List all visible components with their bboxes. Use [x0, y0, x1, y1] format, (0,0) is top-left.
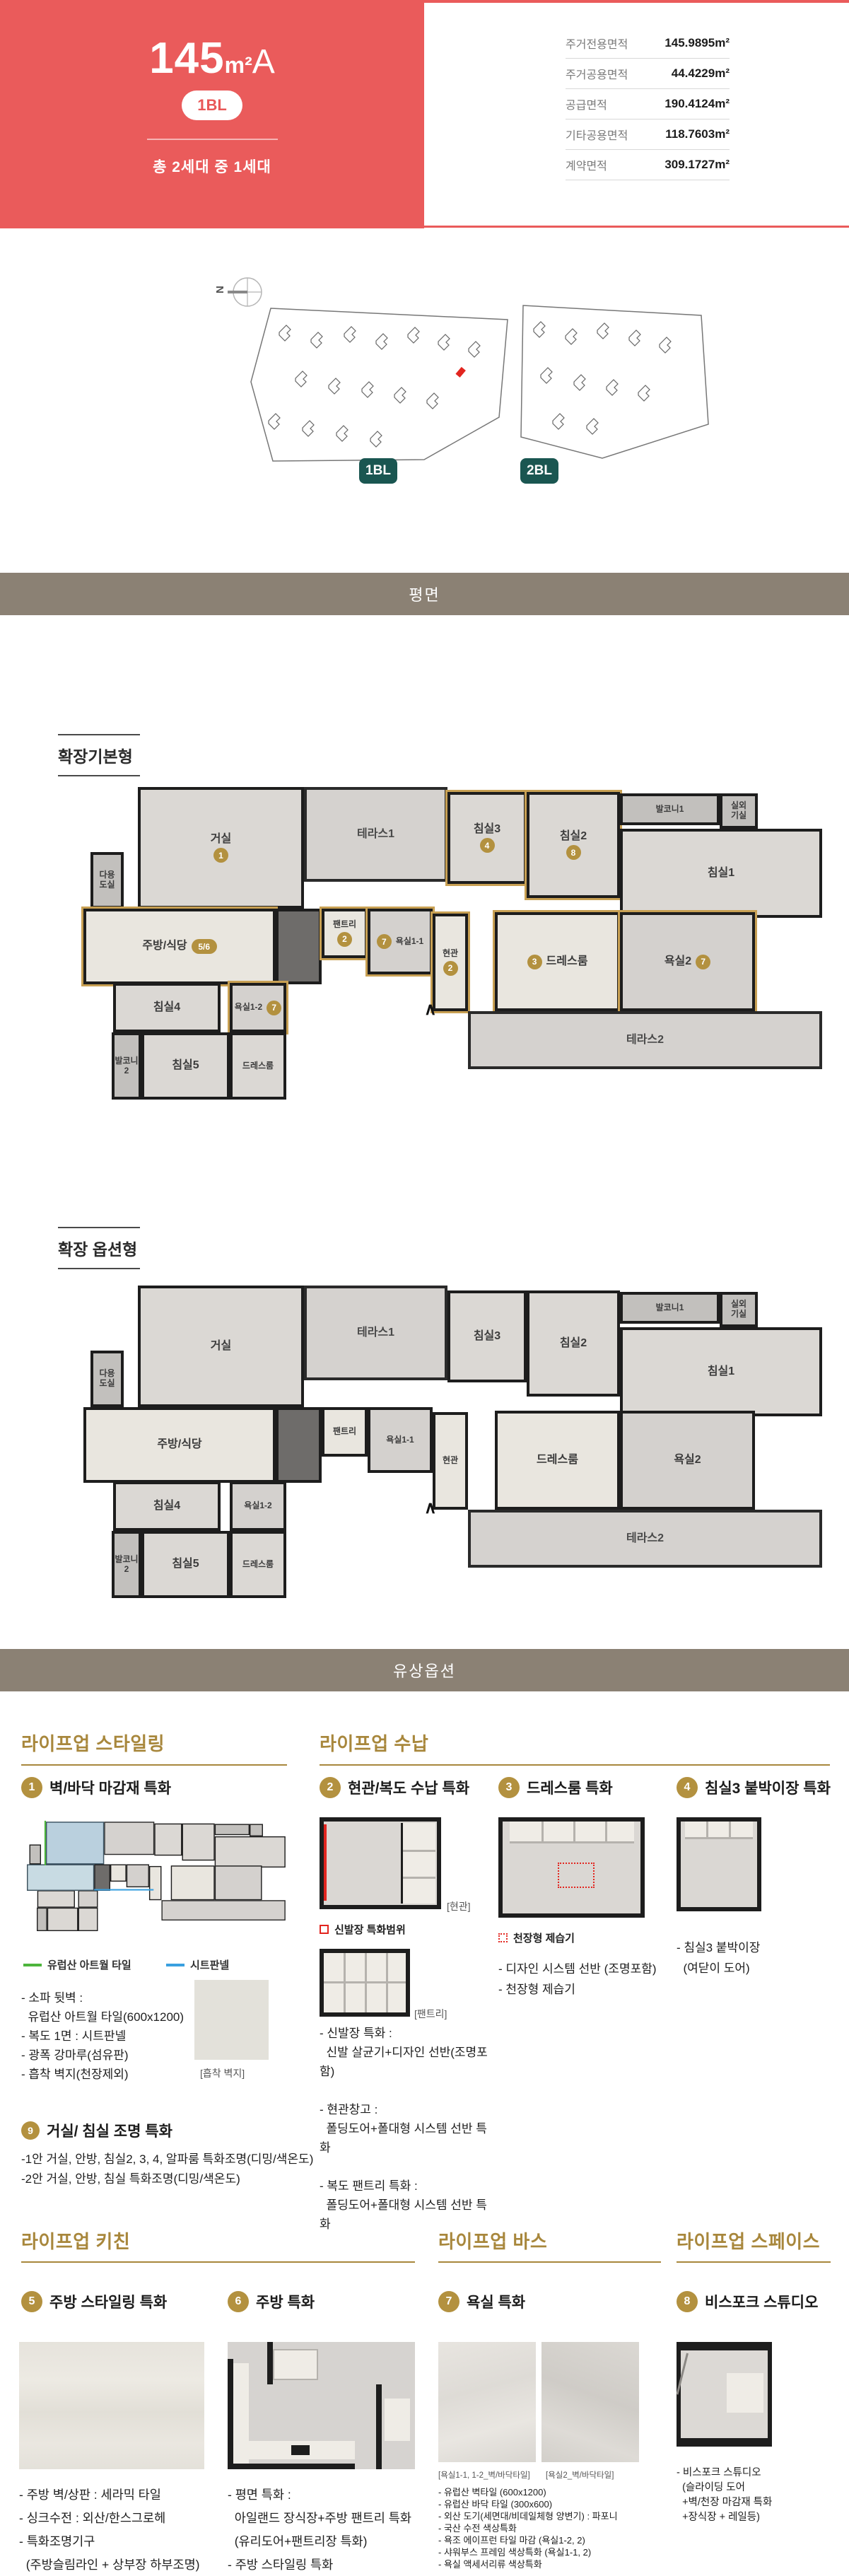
room-label: 팬트리 [333, 1427, 356, 1437]
brochure-page: 145m²A 1BL 총 2세대 중 1세대 주거전용면적145.9895m² … [0, 0, 849, 2576]
room-number-badge: 7 [267, 1001, 281, 1015]
rule [677, 2261, 831, 2263]
room-label: 발코니2 [115, 1056, 139, 1076]
room-label: 발코니2 [115, 1555, 139, 1575]
option-item-7: 7 욕실 특화 [438, 2291, 525, 2312]
table-row: 기타공용면적118.7603m² [566, 120, 730, 150]
rule [320, 1764, 830, 1766]
ceramic-tile-swatch [19, 2342, 204, 2469]
room-label: 드레스룸 [242, 1560, 274, 1570]
room-bed3: 침실34 [447, 792, 527, 884]
room-bath1-1 [127, 1865, 149, 1888]
accent-sky-fill [27, 1865, 94, 1891]
legend-artwall: 유럽산 아트월 타일 [23, 1957, 131, 1972]
room-kitchen: 주방/식당5/6 [83, 909, 276, 984]
section-title-storage: 라이프업 수납 [320, 1730, 428, 1756]
room-bed4: 침실4 [113, 983, 221, 1032]
room-dressroom [171, 1865, 215, 1900]
room-label: 침실4 [153, 1500, 180, 1513]
room-dressroom: 드레스룸 [495, 1411, 620, 1510]
room-bed2: 침실28 [527, 792, 620, 898]
site-badge-1bl: 1BL [359, 458, 397, 484]
bath-tile-caption-1: [욕실1-1, 1-2_벽/바닥타일] [438, 2469, 530, 2481]
item9-bullets: -1안 거실, 안방, 침실2, 3, 4, 알파룸 특화조명(디밍/색온도) … [21, 2150, 318, 2189]
room-label: 침실5 [172, 1558, 199, 1570]
rule [21, 1764, 287, 1766]
room-number-badge: 8 [566, 845, 581, 860]
room-label: 발코니1 [656, 805, 684, 815]
plan2-label: 확장 옵션형 [58, 1227, 140, 1269]
red-dotted-square-icon [498, 1933, 508, 1942]
option-item-9: 9 거실/ 침실 조명 특화 [21, 2120, 172, 2141]
block-badge: 1BL [182, 91, 242, 120]
item-number-badge: 3 [498, 1777, 520, 1798]
bath-tile-swatch-2 [541, 2342, 639, 2462]
header-bottom-line [424, 226, 849, 228]
legend-dehumidifier: 천장형 제습기 [498, 1930, 575, 1945]
thumb-dressroom-plan [498, 1817, 645, 1918]
item-number-badge: 9 [21, 2121, 40, 2140]
wallpaper-swatch [194, 1980, 269, 2060]
section-title-space: 라이프업 스페이스 [677, 2227, 820, 2254]
room-terrace1: 테라스1 [304, 1286, 447, 1380]
room-bath1-2: 욕실1-27 [230, 983, 286, 1032]
item3-bullets: - 디자인 시스템 선반 (조명포함) - 천장형 제습기 [498, 1959, 696, 2000]
room-label: 욕실1-1 [396, 937, 423, 947]
item2-bullets: - 신발장 특화 : 신발 살균기+디자인 선반(조명포함) - 현관창고 : … [320, 2024, 489, 2234]
room-terrace2: 테라스2 [468, 1011, 822, 1069]
room-label: 주방/식당 [157, 1438, 201, 1451]
room-number-badge: 2 [443, 961, 458, 976]
room-label: 침실1 [708, 867, 734, 880]
room-entry: 현관 [433, 1412, 468, 1510]
room-bed4 [37, 1890, 75, 1908]
room-label: 거실 [211, 1340, 231, 1353]
room-utility [30, 1845, 41, 1865]
room-kitchen: 주방/식당 [83, 1407, 276, 1483]
section-title-bath: 라이프업 바스 [438, 2227, 547, 2254]
option-item-8: 8 비스포크 스튜디오 [677, 2291, 818, 2312]
room-bed2: 침실2 [527, 1290, 620, 1397]
room-ac-room: 실외 기실 [720, 1292, 758, 1327]
room-bed3: 침실3 [447, 1290, 527, 1382]
room-label: 침실3 [474, 823, 500, 836]
room-entry: 현관2 [433, 914, 468, 1011]
room-balcony1 [215, 1824, 250, 1835]
room-label: 욕실2 [674, 1454, 701, 1467]
room-bed1: 침실1 [620, 1327, 822, 1416]
room-label: 발코니1 [656, 1303, 684, 1313]
green-line-icon [23, 1964, 42, 1966]
room-label: 욕실1-2 [235, 1003, 262, 1013]
room-number-badge: 7 [377, 934, 392, 949]
header-divider [147, 139, 278, 140]
bath-tile-caption-2: [욕실2_벽/바닥타일] [546, 2469, 614, 2481]
item8-bullets: - 비스포크 스튜디오 (슬라이딩 도어 +벽/천장 마감재 특화 +장식장 +… [677, 2466, 839, 2525]
table-row: 주거공용면적44.4229m² [566, 59, 730, 89]
site-badge-2bl: 2BL [520, 458, 558, 484]
room-corridor [94, 1865, 110, 1891]
room-ac-room [250, 1824, 263, 1836]
room-label: 테라스2 [626, 1532, 664, 1545]
room-bed1: 침실1 [620, 829, 822, 918]
section-bar-plan: 평면 [0, 573, 849, 615]
thumb-styling-plan [21, 1817, 290, 1935]
room-dressroom: 3드레스룸 [495, 912, 620, 1011]
room-label: 팬트리 [333, 920, 356, 930]
pantry-caption: [팬트리] [414, 2007, 447, 2021]
room-label: 테라스1 [357, 1327, 394, 1339]
room-bed5: 침실5 [141, 1032, 230, 1100]
type-title: 145m²A [149, 37, 275, 81]
entry-arrow-icon: ∧ [424, 1498, 437, 1518]
option-item-5: 5 주방 스타일링 특화 [21, 2291, 167, 2312]
room-bed1 [215, 1836, 286, 1867]
room-number-badge: 1 [213, 848, 228, 863]
room-balcony2: 발코니2 [112, 1531, 141, 1598]
bath-tile-swatch-1 [438, 2342, 536, 2462]
room-dressroom2: 드레스룸 [230, 1032, 286, 1100]
room-terrace2: 테라스2 [468, 1510, 822, 1568]
room-ac-room: 실외 기실 [720, 793, 758, 829]
room-terrace1 [104, 1822, 154, 1855]
room-corridor [276, 909, 322, 984]
type-header: 145m²A 1BL 총 2세대 중 1세대 [0, 0, 424, 228]
item7-bullets: - 유럽산 벽타일 (600x1200) - 유럽산 바닥 타일 (300x60… [438, 2486, 672, 2570]
room-label: 침실5 [172, 1059, 199, 1072]
room-label: 침실4 [153, 1001, 180, 1014]
area-table: 주거전용면적145.9895m² 주거공용면적44.4229m² 공급면적190… [566, 28, 730, 180]
entry-arrow-icon: ∧ [424, 999, 437, 1020]
accent-blue-line [94, 1889, 153, 1891]
rule [438, 2261, 661, 2263]
item-number-badge: 4 [677, 1777, 698, 1798]
room-pantry: 팬트리 [322, 1407, 368, 1457]
room-living: 거실 [138, 1286, 304, 1407]
room-dressroom2: 드레스룸 [230, 1531, 286, 1598]
table-row: 주거전용면적145.9895m² [566, 28, 730, 59]
room-label: 현관 [443, 949, 458, 959]
item5-bullets: - 주방 벽/상판 : 세라믹 타일 - 싱크수전 : 외산/한스그로헤 - 특… [19, 2483, 224, 2576]
room-label: 침실1 [708, 1365, 734, 1378]
room-balcony1: 발코니1 [620, 1292, 720, 1324]
room-bath2 [215, 1865, 262, 1900]
room-label: 욕실1-2 [244, 1501, 271, 1511]
room-bed5: 침실5 [141, 1531, 230, 1598]
thumb-entry-plan [320, 1817, 441, 1909]
red-square-icon [320, 1925, 329, 1934]
item-number-badge: 1 [21, 1777, 42, 1798]
room-corridor [276, 1407, 322, 1483]
item6-bullets: - 평면 특화 : 아일랜드 장식장+주방 팬트리 특화 (유리도어+팬트리장 … [228, 2483, 440, 2576]
room-label: 드레스룸 [546, 955, 588, 968]
room-bed5 [47, 1908, 78, 1931]
room-living: 거실1 [138, 787, 304, 909]
room-label: 침실2 [560, 1337, 587, 1350]
room-balcony2 [37, 1908, 47, 1931]
option-item-1: 1 벽/바닥 마감재 특화 [21, 1777, 171, 1798]
room-number-badge: 3 [527, 955, 542, 969]
room-bath1-1: 7욕실1-1 [368, 909, 433, 974]
entry-caption: [현관] [447, 1899, 471, 1913]
room-label: 욕실1-1 [386, 1435, 414, 1445]
item4-bullets: - 침실3 붙박이장 (여닫이 도어) [677, 1937, 832, 1978]
section-bar-paid-options: 유상옵션 [0, 1649, 849, 1691]
room-label: 거실 [211, 833, 231, 846]
room-label: 드레스룸 [537, 1454, 578, 1467]
room-label: 다용 도실 [99, 870, 115, 890]
thumb-studio-plan [677, 2342, 772, 2447]
room-pantry: 팬트리2 [322, 909, 368, 958]
option-item-3: 3 드레스룸 특화 [498, 1777, 613, 1798]
item-number-badge: 5 [21, 2291, 42, 2312]
site-plan-svg: N [212, 255, 735, 488]
room-bath1-2: 욕실1-2 [230, 1481, 286, 1531]
room-label: 침실3 [474, 1330, 500, 1343]
room-label: 다용 도실 [99, 1369, 115, 1389]
item-number-badge: 2 [320, 1777, 341, 1798]
room-label: 실외 기실 [731, 801, 746, 821]
room-label: 테라스1 [357, 828, 394, 841]
accent-sky-fill [46, 1822, 104, 1864]
room-terrace1: 테라스1 [304, 787, 447, 882]
room-balcony2: 발코니2 [112, 1032, 141, 1100]
legend-shoe-cabinet: 신발장 특화범위 [320, 1922, 406, 1937]
plan1-label: 확장기본형 [58, 734, 140, 776]
room-number-badge: 5/6 [192, 939, 217, 954]
room-bed3 [154, 1824, 182, 1856]
room-pantry [110, 1865, 127, 1882]
room-label: 침실2 [560, 830, 587, 843]
room-bath2: 욕실27 [620, 912, 755, 1011]
room-bed4: 침실4 [113, 1481, 221, 1531]
item-number-badge: 7 [438, 2291, 459, 2312]
room-bath1-2 [78, 1890, 98, 1908]
room-bath1-1: 욕실1-1 [368, 1407, 433, 1473]
room-number-badge: 2 [337, 932, 352, 947]
option-item-4: 4 침실3 붙박이장 특화 [677, 1777, 831, 1798]
header-top-line [424, 0, 849, 3]
floor-plan-extended-basic: 거실1테라스1침실34침실28발코니1실외 기실침실1다용 도실주방/식당5/6… [67, 774, 824, 1103]
unit-count-text: 총 2세대 중 1세대 [153, 156, 271, 177]
room-entry [149, 1866, 162, 1900]
room-utility: 다용 도실 [90, 1351, 124, 1407]
accent-green-line [45, 1821, 46, 1865]
table-row: 공급면적190.4124m² [566, 89, 730, 120]
room-balcony1: 발코니1 [620, 793, 720, 825]
rule [21, 2261, 415, 2263]
room-label: 드레스룸 [242, 1061, 274, 1071]
floor-plan-extended-option: 거실테라스1침실3침실2발코니1실외 기실침실1다용 도실주방/식당팬트리욕실1… [67, 1273, 824, 1602]
legend-sheetpanel: 시트판넬 [166, 1957, 229, 1972]
room-bath2: 욕실2 [620, 1411, 755, 1510]
swatch-caption: [흡착 벽지] [200, 2066, 245, 2080]
room-label: 현관 [443, 1456, 458, 1466]
room-label: 실외 기실 [731, 1300, 746, 1319]
room-utility: 다용 도실 [90, 852, 124, 909]
svg-text:N: N [214, 286, 226, 293]
table-row: 계약면적309.1727m² [566, 150, 730, 180]
room-terrace2 [161, 1900, 285, 1921]
room-label: 테라스2 [626, 1034, 664, 1047]
room-number-badge: 4 [480, 838, 495, 853]
option-item-2: 2 현관/복도 수납 특화 [320, 1777, 469, 1798]
room-label: 욕실2 [664, 955, 691, 968]
room-number-badge: 7 [696, 955, 710, 969]
item-number-badge: 6 [228, 2291, 249, 2312]
section-title-styling: 라이프업 스타일링 [21, 1730, 165, 1756]
room-bed2 [182, 1824, 215, 1861]
room-label: 주방/식당 [142, 940, 187, 952]
blue-line-icon [166, 1964, 185, 1966]
option-item-6: 6 주방 특화 [228, 2291, 315, 2312]
compass-icon: N [214, 278, 262, 306]
thumb-pantry-plan [320, 1949, 410, 2017]
item-number-badge: 8 [677, 2291, 698, 2312]
item1-bullets: - 소파 뒷벽 : 유럽산 아트월 타일(600x1200) - 복도 1면 :… [21, 1988, 198, 2084]
thumb-kitchen-plan [228, 2342, 415, 2469]
type-size: 145 [149, 34, 224, 83]
room-dressroom2 [78, 1908, 98, 1931]
thumb-bedroom3-plan [677, 1817, 761, 1911]
section-title-kitchen: 라이프업 키친 [21, 2227, 130, 2254]
